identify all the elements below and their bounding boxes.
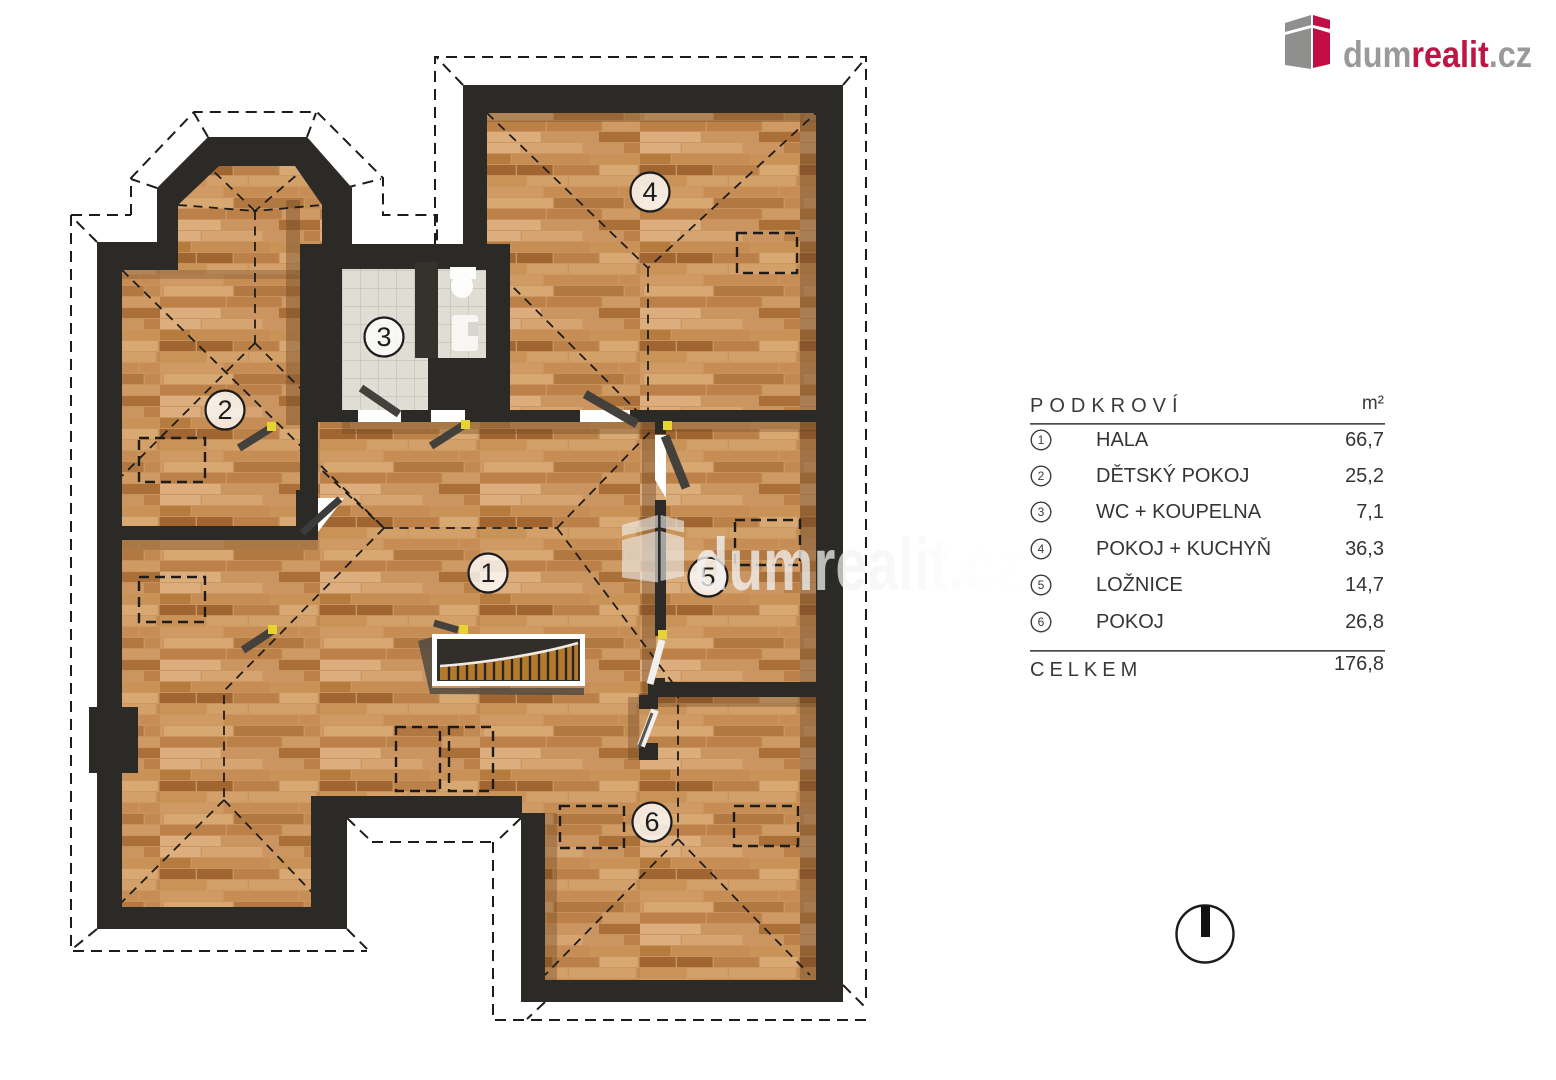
svg-text:POKOJ: POKOJ — [1096, 611, 1164, 633]
svg-text:66,7: 66,7 — [1345, 429, 1384, 451]
svg-text:1: 1 — [480, 558, 495, 588]
svg-text:14,7: 14,7 — [1345, 574, 1384, 596]
svg-text:DĚTSKÝ POKOJ: DĚTSKÝ POKOJ — [1096, 464, 1249, 487]
svg-text:2: 2 — [1038, 469, 1045, 483]
svg-text:26,8: 26,8 — [1345, 611, 1384, 633]
svg-text:1: 1 — [1038, 433, 1045, 447]
svg-text:PODKROVÍ: PODKROVÍ — [1030, 394, 1184, 417]
svg-text:3: 3 — [376, 322, 391, 352]
svg-text:176,8: 176,8 — [1334, 653, 1384, 675]
svg-text:CELKEM: CELKEM — [1030, 659, 1142, 681]
svg-text:POKOJ + KUCHYŇ: POKOJ + KUCHYŇ — [1096, 537, 1271, 560]
svg-text:dumrealit.cz: dumrealit.cz — [694, 523, 1024, 606]
svg-text:m²: m² — [1362, 393, 1384, 414]
svg-text:LOŽNICE: LOŽNICE — [1096, 573, 1183, 596]
svg-text:HALA: HALA — [1096, 429, 1149, 451]
svg-text:3: 3 — [1038, 505, 1045, 519]
svg-text:25,2: 25,2 — [1345, 465, 1384, 487]
svg-text:36,3: 36,3 — [1345, 538, 1384, 560]
svg-text:2: 2 — [217, 395, 232, 425]
svg-text:4: 4 — [642, 177, 657, 207]
svg-text:4: 4 — [1038, 542, 1045, 556]
svg-text:dumrealit.cz: dumrealit.cz — [1343, 34, 1532, 75]
svg-text:6: 6 — [644, 807, 659, 837]
svg-text:7,1: 7,1 — [1356, 501, 1384, 523]
svg-text:6: 6 — [1038, 615, 1045, 629]
svg-text:5: 5 — [1038, 578, 1045, 592]
svg-text:WC + KOUPELNA: WC + KOUPELNA — [1096, 501, 1262, 523]
